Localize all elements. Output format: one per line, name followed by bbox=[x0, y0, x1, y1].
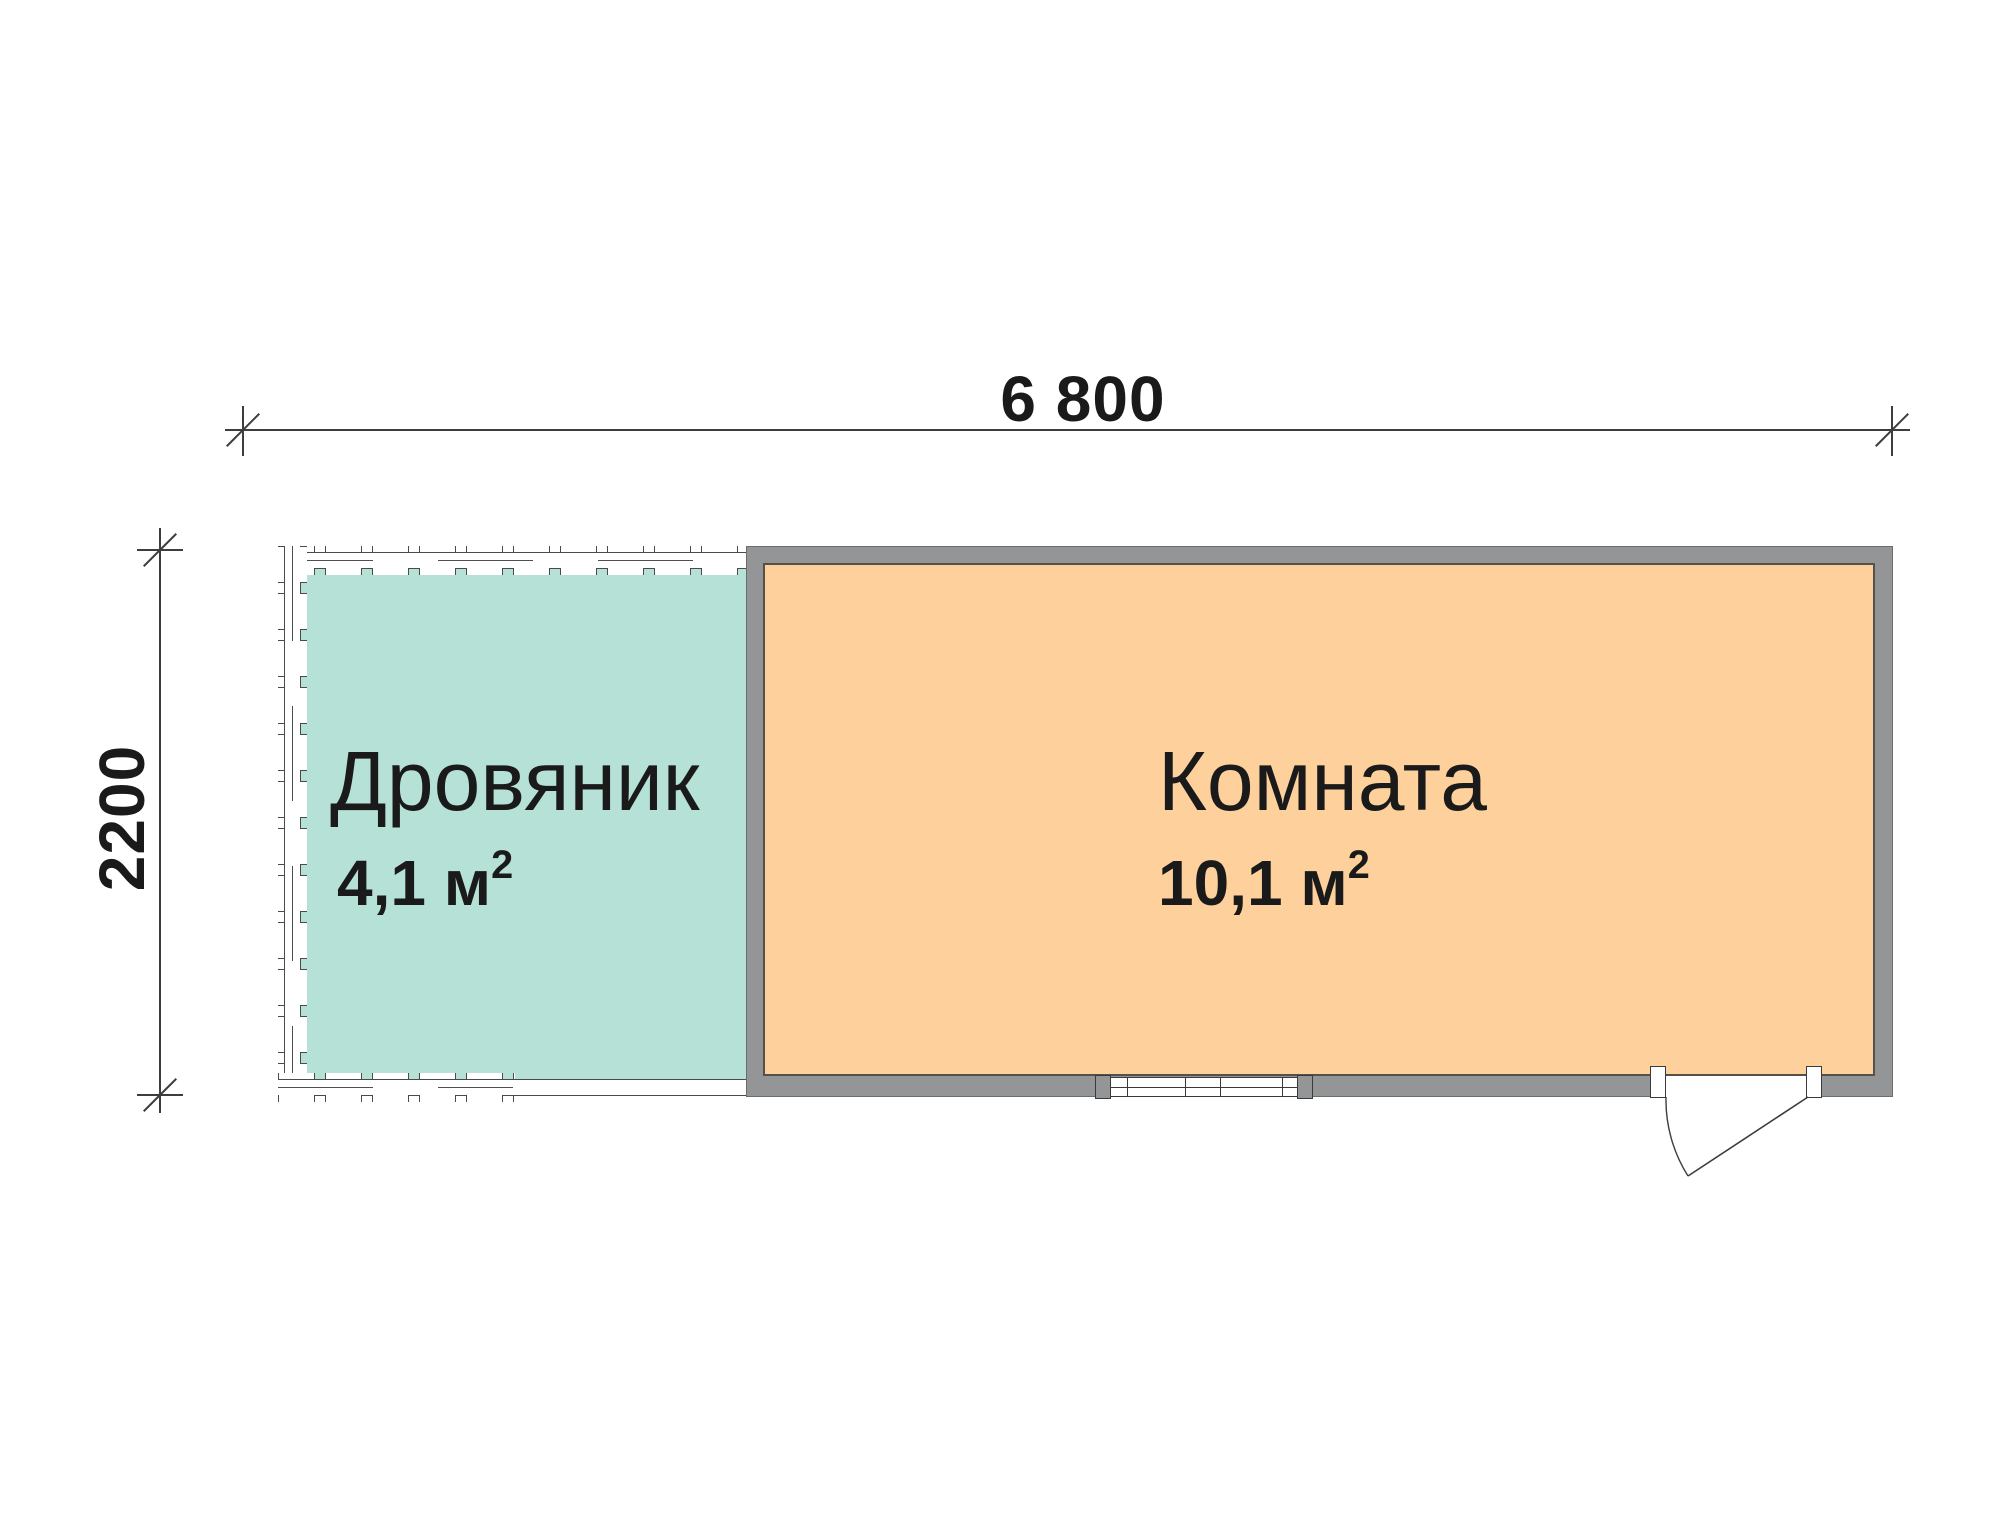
floor-plan-canvas: 6 800 2200 Дровяник 4,1 м2 Комн bbox=[0, 0, 2000, 1538]
dimension-width-label: 6 800 bbox=[883, 362, 1283, 436]
dimension-height-line bbox=[159, 528, 161, 1113]
woodshed-sill-band bbox=[513, 1079, 746, 1096]
window-symbol bbox=[1110, 1077, 1298, 1097]
window-mullion bbox=[1220, 1078, 1221, 1096]
woodshed-wall-left-inner-slats bbox=[300, 546, 307, 1102]
window-glass-line bbox=[1111, 1087, 1297, 1088]
woodshed-area-value: 4,1 м bbox=[337, 847, 491, 919]
window-mullion bbox=[1282, 1078, 1283, 1096]
room-area-sup: 2 bbox=[1348, 843, 1370, 887]
window-jamb-left bbox=[1095, 1075, 1111, 1099]
woodshed-wall-top-inner-slats bbox=[278, 568, 746, 575]
door-swing-symbol bbox=[1640, 1088, 1860, 1218]
woodshed-wall-top bbox=[278, 552, 746, 569]
room-name-label: Комната bbox=[1158, 733, 1487, 830]
room-area-value: 10,1 м bbox=[1158, 847, 1348, 919]
woodshed-area-sup: 2 bbox=[491, 843, 513, 887]
woodshed-wall-bottom bbox=[278, 1079, 515, 1096]
woodshed-area-label: 4,1 м2 bbox=[337, 846, 513, 920]
door-swing-arc bbox=[1666, 1097, 1688, 1176]
door-leaf bbox=[1688, 1097, 1808, 1176]
dimension-height-label: 2200 bbox=[85, 668, 159, 968]
woodshed-wall-bottom-inner-slats bbox=[278, 1095, 515, 1102]
window-mullion bbox=[1127, 1078, 1128, 1096]
woodshed-wall-left bbox=[284, 546, 301, 1102]
window-mullion bbox=[1185, 1078, 1186, 1096]
window-jamb-right bbox=[1297, 1075, 1313, 1099]
room-area-label: 10,1 м2 bbox=[1158, 846, 1370, 920]
woodshed-name-label: Дровяник bbox=[330, 733, 700, 830]
